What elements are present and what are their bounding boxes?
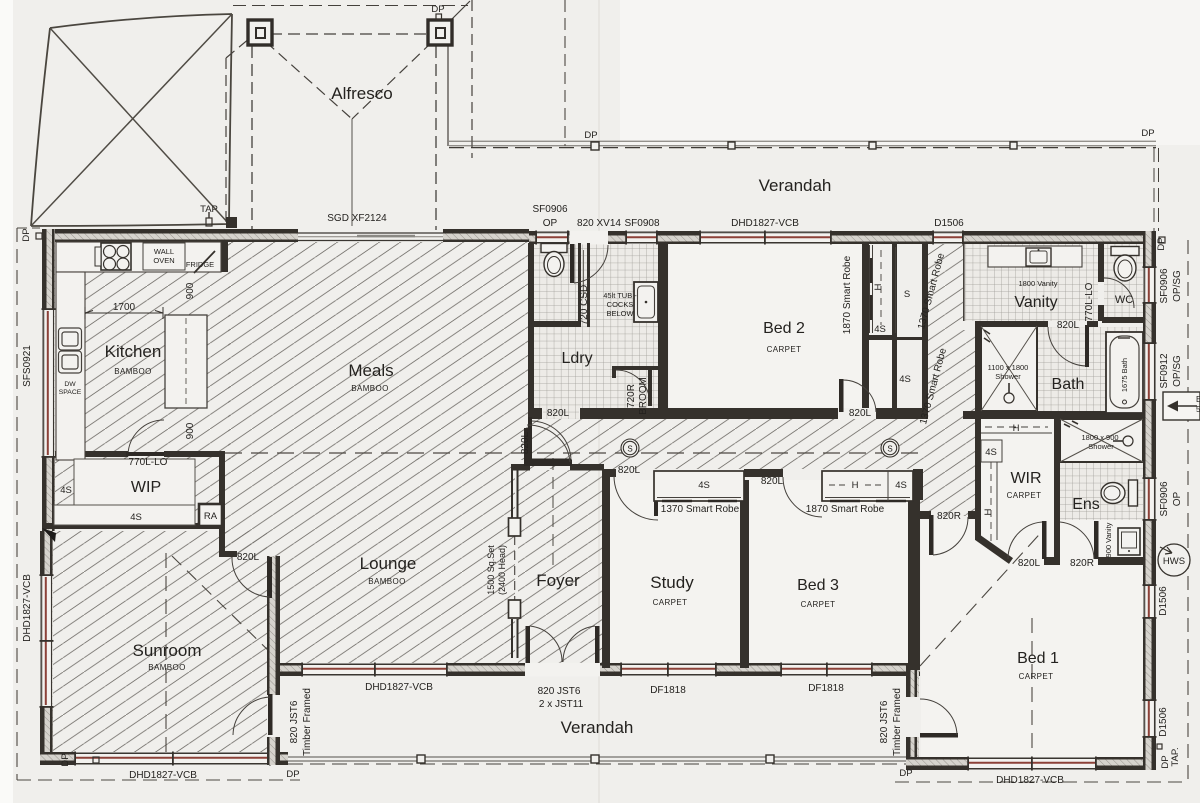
svg-text:H: H [1013,423,1020,434]
svg-text:HWS: HWS [1163,556,1185,567]
svg-text:SF0912: SF0912 [1159,353,1170,388]
svg-text:Bath: Bath [1052,376,1085,393]
svg-text:820L: 820L [520,431,531,454]
svg-text:DHD1827-VCB: DHD1827-VCB [22,574,33,642]
svg-text:SF0906: SF0906 [1159,481,1170,516]
svg-text:4S: 4S [130,512,142,523]
svg-text:Shower: Shower [995,372,1021,381]
svg-text:4S: 4S [985,447,997,458]
svg-text:1700: 1700 [113,302,136,313]
svg-text:OVEN: OVEN [153,256,174,265]
svg-text:S: S [627,445,632,454]
svg-text:720R: 720R [626,384,637,408]
svg-text:1500 Sq.Set: 1500 Sq.Set [486,545,496,595]
svg-text:DHD1827-VCB: DHD1827-VCB [731,218,799,229]
svg-text:4S: 4S [895,480,907,491]
svg-text:Bed 1: Bed 1 [1017,650,1059,667]
svg-text:WIP: WIP [131,479,161,496]
svg-text:770L-LO: 770L-LO [129,457,168,468]
svg-text:BAMBOO: BAMBOO [368,577,406,586]
svg-text:Timber Framed: Timber Framed [892,688,903,756]
svg-text:D1506: D1506 [934,218,964,229]
svg-text:CARPET: CARPET [653,598,688,607]
svg-text:SGD XF2124: SGD XF2124 [327,213,387,224]
svg-text:1870 Smart Robe: 1870 Smart Robe [842,255,853,334]
svg-text:BAMBOO: BAMBOO [351,384,389,393]
svg-text:4S: 4S [698,480,710,491]
svg-text:820L: 820L [761,476,784,487]
svg-text:Bed 2: Bed 2 [763,320,805,337]
svg-text:DP: DP [60,753,71,766]
svg-text:OP: OP [543,218,558,229]
svg-text:1800 Vanity: 1800 Vanity [1018,279,1057,288]
svg-text:820L: 820L [849,408,872,419]
svg-text:SFS0921: SFS0921 [22,345,33,387]
svg-text:Meals: Meals [348,361,393,380]
svg-text:820L: 820L [618,465,641,476]
svg-text:Study: Study [650,573,694,592]
svg-text:CARPET: CARPET [767,345,802,354]
svg-text:5: 5 [1196,405,1200,414]
svg-text:CARPET: CARPET [801,600,836,609]
svg-text:BELOW: BELOW [606,309,634,318]
svg-text:D1506: D1506 [1158,707,1169,737]
svg-text:45lt TUB -: 45lt TUB - [603,291,637,300]
svg-text:Shower: Shower [1088,442,1114,451]
svg-text:1675 Bath: 1675 Bath [1120,358,1129,392]
svg-text:820L: 820L [237,552,260,563]
svg-text:FRIDGE: FRIDGE [186,260,214,269]
svg-text:RA: RA [204,511,218,522]
svg-text:4S: 4S [60,485,72,496]
svg-text:BROOM: BROOM [638,377,649,415]
svg-text:820 JST6: 820 JST6 [538,686,581,697]
svg-text:Timber Framed: Timber Framed [302,688,313,756]
svg-text:Verandah: Verandah [561,718,634,737]
svg-text:DF1818: DF1818 [650,685,686,696]
svg-text:4S: 4S [874,324,886,335]
svg-text:1800 x 900: 1800 x 900 [1081,433,1118,442]
svg-text:Ldry: Ldry [561,350,592,367]
svg-text:SF0906: SF0906 [1159,268,1170,303]
svg-text:DP: DP [21,228,32,241]
svg-text:820 JST6: 820 JST6 [289,700,300,743]
svg-text:(2400 Head): (2400 Head) [497,545,507,595]
svg-text:OP/SG: OP/SG [1172,355,1183,387]
svg-text:DHD1827-VCB: DHD1827-VCB [129,770,197,781]
svg-text:DP: DP [1141,128,1154,139]
svg-text:820R: 820R [937,511,961,522]
svg-text:720 CSD: 720 CSD [579,285,590,326]
svg-text:H: H [873,283,884,290]
svg-text:DP: DP [1156,237,1167,250]
svg-text:2 x JST11: 2 x JST11 [539,699,584,710]
svg-text:DHD1827-VCB: DHD1827-VCB [365,682,433,693]
svg-text:CARPET: CARPET [1019,672,1054,681]
svg-text:1100 x 1800: 1100 x 1800 [988,363,1029,372]
svg-text:E: E [1196,395,1200,404]
svg-text:820L: 820L [1018,558,1041,569]
svg-text:WIR: WIR [1010,470,1041,487]
svg-text:SF0908: SF0908 [624,218,659,229]
svg-text:TAP.: TAP. [1170,747,1181,766]
svg-text:Bed 3: Bed 3 [797,577,839,594]
svg-text:BAMBOO: BAMBOO [114,367,152,376]
svg-text:DP: DP [899,768,912,779]
svg-text:900 Vanity: 900 Vanity [1104,522,1113,557]
svg-text:S: S [904,289,910,300]
svg-text:820 XV14: 820 XV14 [577,218,621,229]
svg-text:DP: DP [431,4,444,15]
svg-text:BAMBOO: BAMBOO [148,663,186,672]
svg-text:Sunroom: Sunroom [133,641,202,660]
svg-text:Alfresco: Alfresco [331,84,392,103]
svg-text:DW: DW [64,381,76,388]
svg-text:Kitchen: Kitchen [105,342,162,361]
svg-text:H: H [852,480,859,491]
svg-text:820 JST6: 820 JST6 [879,700,890,743]
svg-text:CARPET: CARPET [1007,491,1042,500]
svg-text:SF0906: SF0906 [532,204,567,215]
svg-text:DP: DP [286,769,299,780]
svg-text:S: S [887,445,892,454]
svg-text:900: 900 [185,282,196,299]
svg-text:DF1818: DF1818 [808,683,844,694]
svg-text:1370 Smart Robe: 1370 Smart Robe [661,504,740,515]
svg-text:OP/SG: OP/SG [1172,270,1183,302]
svg-text:TAP: TAP [200,204,218,215]
svg-text:SPACE: SPACE [59,389,82,396]
svg-text:Foyer: Foyer [536,571,580,590]
svg-text:D1506: D1506 [1158,586,1169,616]
svg-text:WC: WC [1115,294,1133,306]
svg-text:DP: DP [584,130,597,141]
svg-text:Vanity: Vanity [1014,294,1057,311]
svg-text:770L-LO: 770L-LO [1084,282,1095,321]
svg-text:Lounge: Lounge [360,554,417,573]
svg-text:COCKS: COCKS [607,300,634,309]
svg-text:H: H [983,508,994,515]
svg-text:OP: OP [1172,491,1183,506]
svg-text:DHD1827-VCB: DHD1827-VCB [996,775,1064,786]
svg-text:4S: 4S [899,374,911,385]
svg-text:820L: 820L [1057,320,1080,331]
svg-text:900: 900 [185,422,196,439]
svg-text:1870 Smart Robe: 1870 Smart Robe [806,504,885,515]
svg-text:820L: 820L [547,408,570,419]
svg-text:WALL: WALL [154,247,174,256]
svg-text:Verandah: Verandah [759,176,832,195]
svg-text:Ens: Ens [1072,496,1100,513]
svg-text:820R: 820R [1070,558,1094,569]
